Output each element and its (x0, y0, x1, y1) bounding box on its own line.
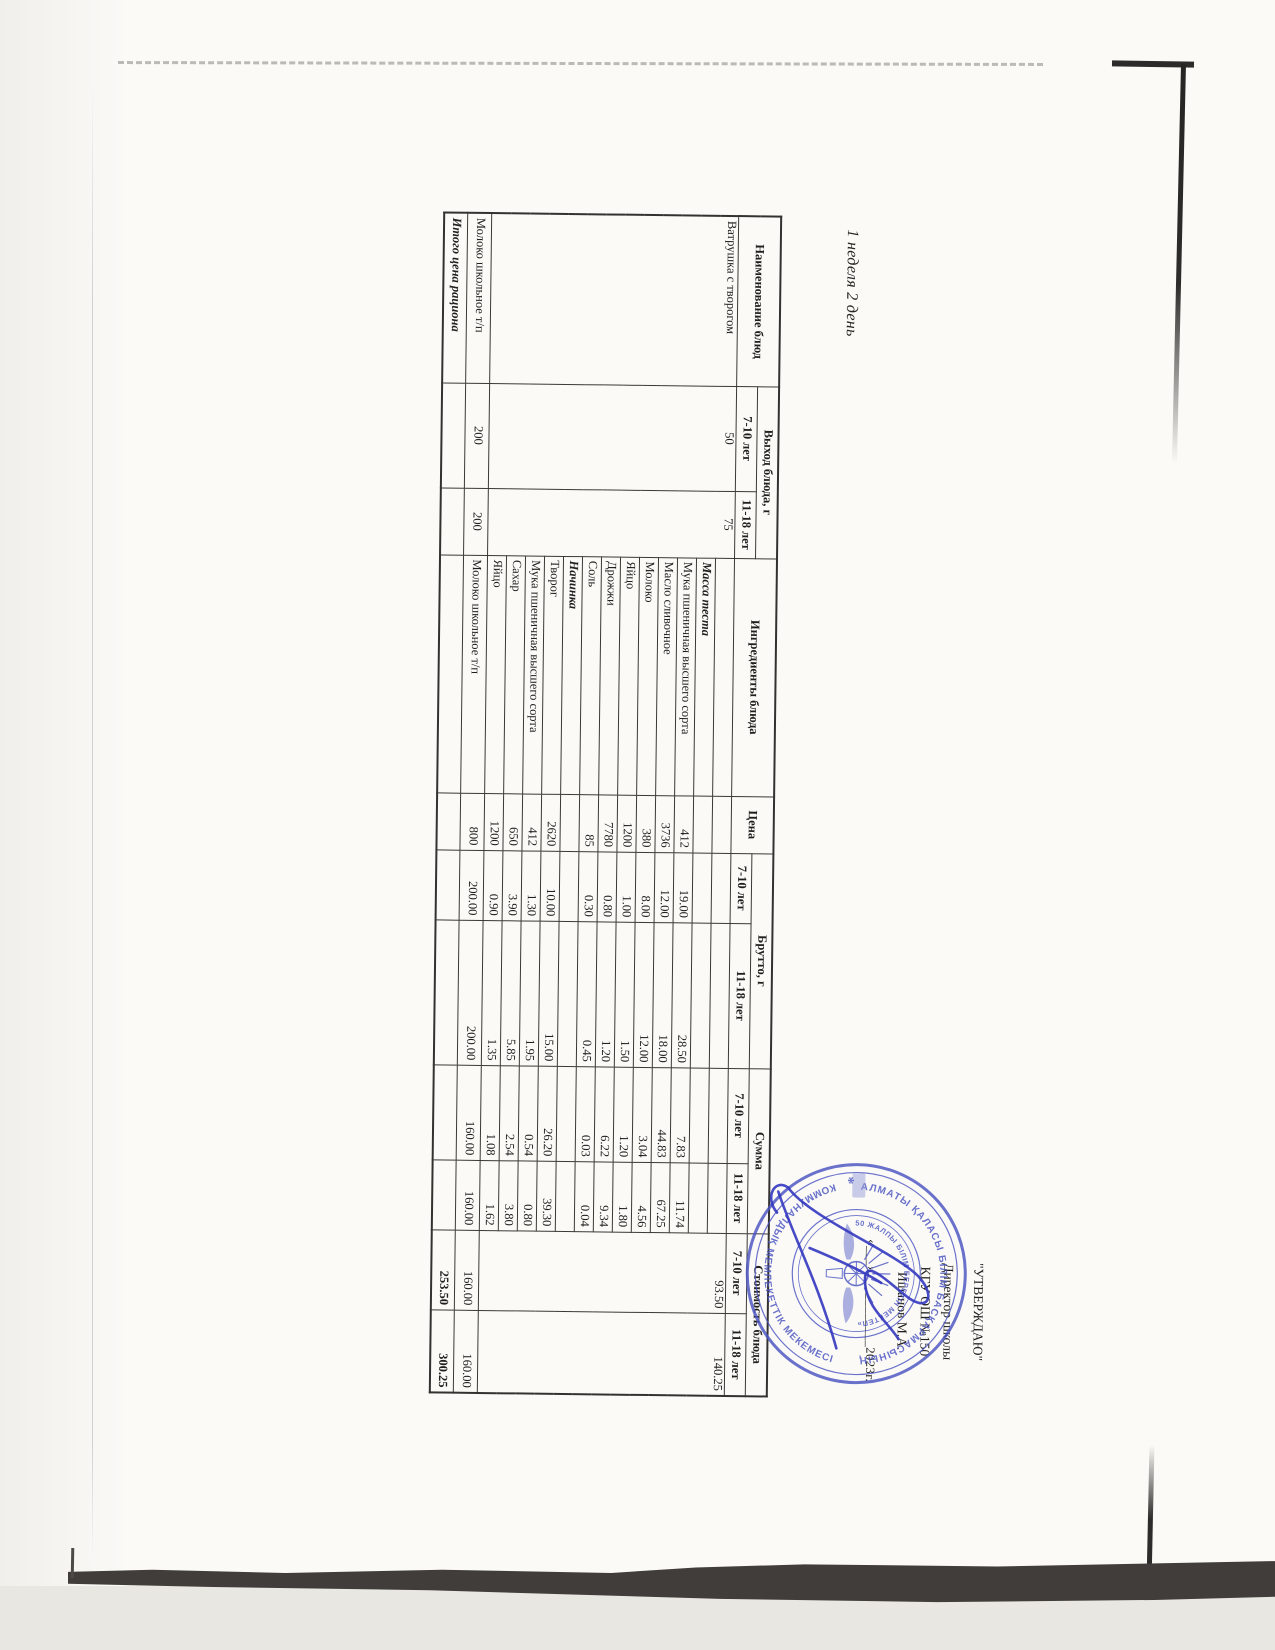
total-cost-11-18: 300.25 (430, 1309, 455, 1392)
ingredient-cell-name: Соль (580, 556, 602, 794)
ingredient-cell-sum_11_18: 9.34 (594, 1161, 614, 1231)
ingredient-cell-gross_7_10 (693, 853, 713, 923)
milk-name: Молоко школьное т/п (466, 213, 492, 383)
ingredient-cell-sum_7_10: 1.08 (481, 1065, 501, 1160)
milk-price: 800 (460, 793, 485, 850)
ingredient-cell-sum_11_18: 3.80 (499, 1160, 519, 1230)
ingredient-cell-sum_11_18: 0.04 (575, 1161, 595, 1231)
ingredient-cell-sum_7_10: 3.04 (633, 1067, 653, 1162)
milk-output-11-18: 200 (464, 488, 489, 555)
ingredient-cell-blank (713, 558, 735, 796)
ingredient-cell-sum_7_10: 7.83 (671, 1067, 691, 1162)
ingredient-cell-name: Яйцо (485, 555, 507, 793)
ingredient-cell-price: 3736 (655, 795, 675, 852)
ingredient-cell-price: 1200 (484, 793, 504, 850)
scan-paper-left-edge (92, 80, 93, 1560)
ingredient-cell-price (560, 794, 580, 851)
gross-cell-blank (710, 923, 731, 1068)
milk-sum-11-18: 160.00 (456, 1160, 481, 1230)
ingredient-cell-price (693, 796, 713, 853)
empty-cell (441, 382, 466, 487)
empty-cell (437, 554, 464, 792)
ingredient-cell-price: 380 (636, 795, 656, 852)
ingredient-cell-gross_11_18 (558, 921, 579, 1066)
ingredient-cell-name: Сахар (504, 555, 526, 793)
ingredient-cell-gross_11_18: 1.95 (520, 920, 541, 1065)
empty-cell (436, 792, 461, 849)
dish-cost-11-18: 140.25 (478, 1310, 726, 1396)
ingredient-cell-gross_7_10: 0.30 (579, 851, 599, 921)
ingredient-cell-price: 2620 (541, 794, 561, 851)
ingredient-cell-name: Молоко (637, 557, 659, 795)
ingredient-cell-name: Масса теста (694, 558, 716, 796)
ingredient-cell-gross_11_18: 1.35 (482, 920, 503, 1065)
milk-gross-11-18: 200.00 (458, 920, 484, 1065)
ingredient-cell-sum_7_10 (557, 1066, 577, 1161)
sum-cell-blank (709, 1068, 729, 1163)
empty-cell (432, 1159, 457, 1229)
col-header-price: Цена (731, 796, 774, 854)
ingredient-cell-price: 412 (522, 793, 542, 850)
ingredient-cell-gross_11_18: 18.00 (653, 922, 674, 1067)
ingredient-cell-name: Начинка (561, 556, 583, 794)
milk-ingredient: Молоко школьное т/п (461, 555, 488, 793)
scan-edge-right-line-top (1172, 64, 1186, 464)
empty-cell (440, 487, 465, 554)
subheader-sum-7-10: 7-10 лет (728, 1068, 750, 1163)
ingredient-cell-gross_7_10: 19.00 (674, 852, 694, 922)
ingredient-cell-gross_11_18: 1.50 (615, 922, 636, 1067)
ingredient-cell-gross_7_10: 12.00 (655, 852, 675, 922)
ingredient-cell-gross_11_18 (691, 923, 712, 1068)
milk-cost-11-18: 160.00 (454, 1310, 479, 1393)
ingredient-cell-name: Яйцо (618, 557, 640, 795)
signature (747, 1155, 960, 1428)
ingredient-cell-sum_7_10 (690, 1068, 710, 1163)
scan-edge-top-line (118, 61, 1043, 66)
ingredient-cell-gross_7_10: 1.00 (617, 852, 637, 922)
ingredient-cell-gross_11_18: 0.45 (577, 921, 598, 1066)
total-label: Итого цена рациона (442, 212, 468, 382)
ingredient-cell-sum_11_18: 39.30 (537, 1161, 557, 1231)
ingredient-cell-sum_7_10: 0.03 (576, 1066, 596, 1161)
document-title: 1 неделя 2 день (842, 229, 861, 336)
empty-cell (434, 919, 460, 1064)
ingredient-cell-sum_11_18: 1.62 (480, 1160, 500, 1230)
ingredient-cell-gross_11_18: 1.20 (596, 921, 617, 1066)
col-header-gross: Брутто, г (750, 853, 774, 1068)
scan-corner-bottom-left (71, 1548, 75, 1578)
total-cost-7-10: 253.50 (431, 1229, 456, 1309)
subheader-gross-7-10: 7-10 лет (731, 853, 753, 923)
ingredient-cell-gross_7_10 (560, 851, 580, 921)
ingredient-cell-sum_11_18: 4.56 (632, 1162, 652, 1232)
dish-cost-7-10: 93.50 (479, 1230, 727, 1313)
ingredient-cell-gross_11_18: 15.00 (539, 921, 560, 1066)
ingredient-cell-gross_7_10: 0.80 (598, 851, 618, 921)
ingredient-cell-gross_7_10: 10.00 (541, 851, 561, 921)
subheader-output-11-18: 11-18 лет (735, 491, 757, 558)
subheader-gross-11-18: 11-18 лет (729, 923, 752, 1068)
ingredient-cell-gross_7_10: 8.00 (636, 852, 656, 922)
gross-cell-blank (712, 853, 732, 923)
ingredient-cell-sum_7_10: 0.54 (519, 1065, 539, 1160)
ingredient-cell-price: 1200 (617, 795, 637, 852)
ingredient-cell-gross_11_18: 12.00 (634, 922, 655, 1067)
ingredient-cell-name: Масло сливочное (656, 557, 678, 795)
milk-output-7-10: 200 (465, 383, 490, 488)
ingredient-cell-gross_7_10: 3.90 (503, 850, 523, 920)
ingredient-cell-price: 7780 (598, 794, 618, 851)
ingredient-cell-name: Дрожжи (599, 556, 621, 794)
ingredient-cell-sum_11_18: 0.80 (518, 1160, 538, 1230)
dish-output-7-10: 50 (489, 383, 737, 491)
ingredient-cell-name: Мука пшеничная высшего сорта (523, 555, 545, 793)
ingredient-cell-sum_11_18 (556, 1161, 576, 1231)
ingredient-cell-sum_7_10: 2.54 (500, 1065, 520, 1160)
empty-cell (436, 849, 461, 919)
empty-cell (433, 1064, 458, 1159)
ingredient-cell-name: Мука пшеничная высшего сорта (675, 557, 697, 795)
subheader-output-7-10: 7-10 лет (736, 386, 758, 491)
dish-output-11-18: 75 (488, 488, 736, 558)
ingredient-cell-sum_7_10: 6.22 (595, 1066, 615, 1161)
ingredient-cell-price: 650 (503, 793, 523, 850)
ingredient-cell-price: 412 (674, 795, 694, 852)
ingredient-cell-gross_7_10: 0.90 (484, 850, 504, 920)
ingredient-cell-sum_7_10: 26.20 (538, 1066, 558, 1161)
price-cell-blank (712, 796, 732, 853)
milk-sum-7-10: 160.00 (457, 1065, 482, 1160)
ingredient-cell-name: Творог (542, 556, 564, 794)
dish-name: Ватрушка с творогом (490, 213, 739, 386)
ingredient-cell-sum_11_18: 67.25 (651, 1162, 671, 1232)
sum-cell-blank (708, 1163, 728, 1233)
ingredient-cell-sum_7_10: 44.83 (652, 1067, 672, 1162)
ingredient-cell-sum_7_10: 1.20 (614, 1067, 634, 1162)
col-header-ingredients: Ингредиенты блюда (732, 558, 777, 796)
rotated-document-sheet: 1 неделя 2 день Наименование блюд Выход … (433, 207, 1027, 1404)
ingredient-cell-sum_11_18: 1.80 (613, 1162, 633, 1232)
ingredient-cell-gross_11_18: 28.50 (672, 922, 693, 1067)
ingredient-cell-sum_11_18: 11.74 (670, 1162, 690, 1232)
ingredient-cell-price: 85 (579, 794, 599, 851)
menu-table: Наименование блюд Выход блюда, г Ингреди… (429, 211, 782, 1397)
col-header-output: Выход блюда, г (756, 386, 779, 558)
col-header-dish: Наименование блюд (737, 216, 781, 387)
ingredient-cell-sum_11_18 (689, 1163, 709, 1233)
ingredient-cell-gross_7_10: 1.30 (522, 850, 542, 920)
milk-gross-7-10: 200.00 (460, 850, 485, 920)
ingredient-cell-gross_11_18: 5.85 (501, 920, 522, 1065)
milk-cost-7-10: 160.00 (455, 1230, 480, 1310)
